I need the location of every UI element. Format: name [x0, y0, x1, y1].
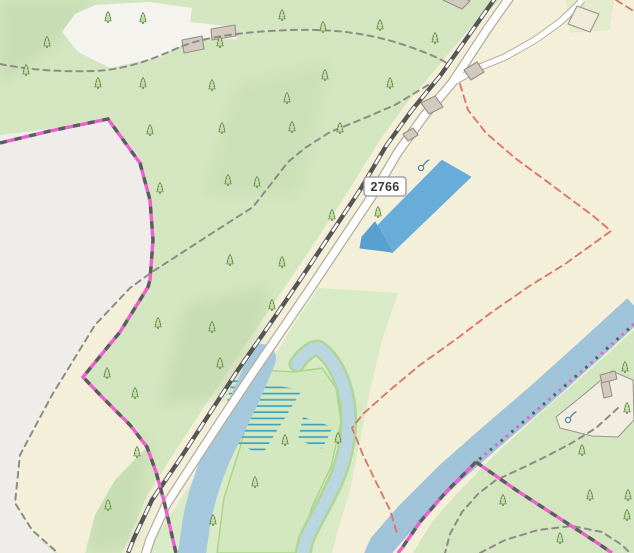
route-badge-label: 2766 [370, 180, 399, 194]
topo-map[interactable]: 2766 [0, 0, 634, 553]
map-canvas: 2766 [0, 0, 634, 553]
route-badge: 2766 [364, 177, 406, 196]
